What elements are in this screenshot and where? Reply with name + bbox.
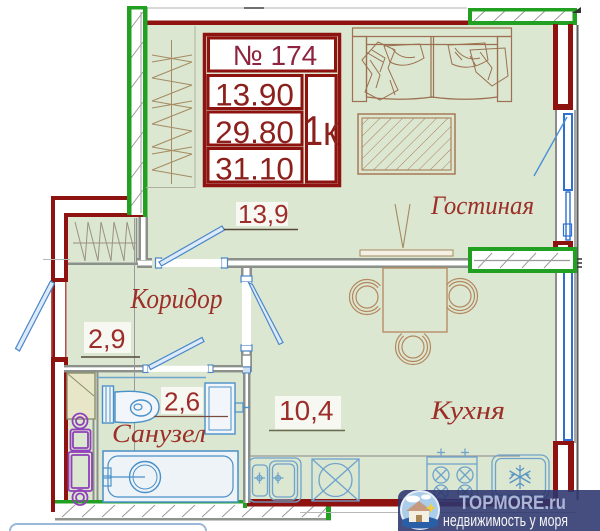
svg-text:31.10: 31.10	[215, 151, 294, 187]
svg-text:Коридор: Коридор	[130, 284, 223, 315]
svg-text:1к: 1к	[304, 107, 340, 154]
svg-text:недвижимость у моря: недвижимость у моря	[443, 511, 568, 530]
svg-text:Кухня: Кухня	[430, 396, 505, 425]
svg-text:№ 174: № 174	[233, 40, 318, 71]
svg-text:10,4: 10,4	[279, 395, 334, 426]
svg-text:2,9: 2,9	[88, 324, 126, 354]
svg-text:Санузел: Санузел	[112, 419, 206, 448]
svg-text:2,6: 2,6	[164, 387, 200, 417]
svg-text:13,9: 13,9	[238, 199, 289, 229]
svg-text:13.90: 13.90	[215, 77, 294, 113]
svg-text:Гостиная: Гостиная	[430, 191, 534, 220]
svg-text:29.80: 29.80	[215, 114, 294, 150]
